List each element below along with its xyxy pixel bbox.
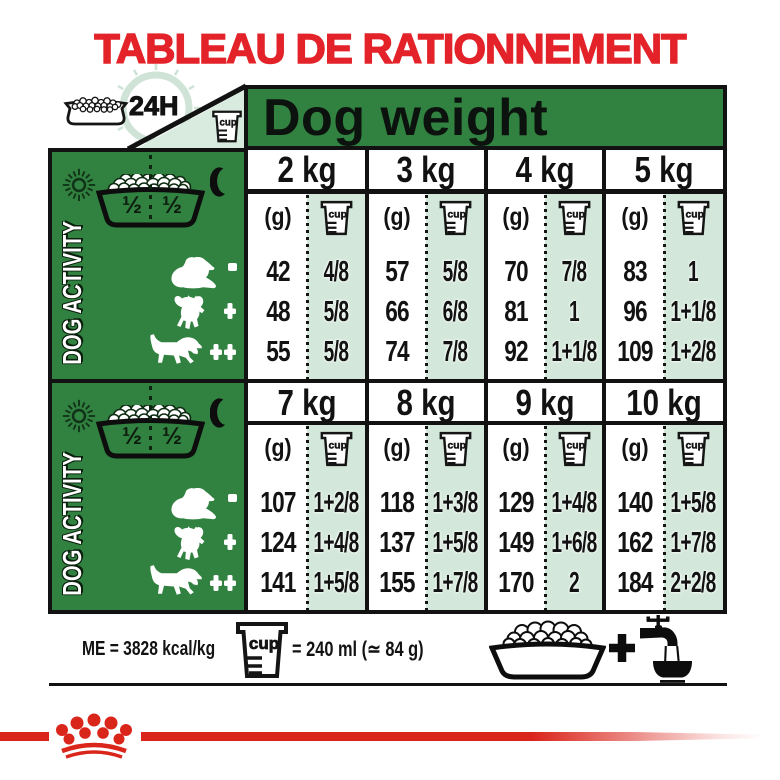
svg-text:cup: cup bbox=[220, 117, 237, 128]
